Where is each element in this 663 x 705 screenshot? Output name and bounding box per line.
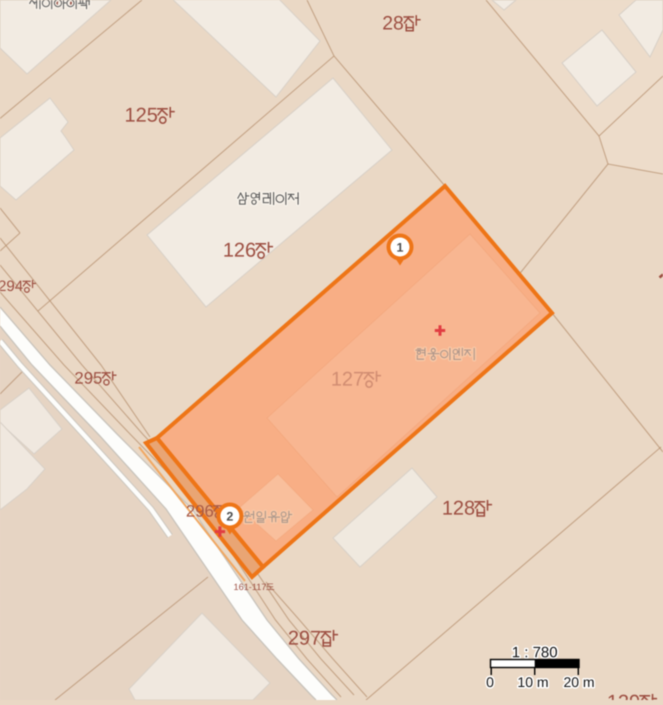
svg-text:20 m: 20 m	[563, 674, 594, 690]
svg-text:126: 126	[223, 240, 256, 262]
svg-text:10 m: 10 m	[517, 674, 548, 690]
svg-text:294: 294	[0, 278, 23, 295]
svg-text:161-117: 161-117	[234, 582, 267, 592]
svg-text:296: 296	[186, 502, 214, 521]
svg-text:1 : 780: 1 : 780	[512, 644, 558, 661]
svg-text:2: 2	[226, 510, 233, 524]
svg-text:1: 1	[397, 241, 404, 255]
svg-text:295: 295	[74, 369, 102, 388]
svg-text:297: 297	[288, 628, 321, 650]
svg-text:129: 129	[607, 692, 640, 700]
svg-text:0: 0	[486, 674, 494, 690]
svg-text:28: 28	[382, 12, 404, 34]
svg-text:128: 128	[442, 498, 475, 520]
svg-text:125: 125	[125, 105, 158, 127]
svg-text:127: 127	[331, 369, 364, 391]
